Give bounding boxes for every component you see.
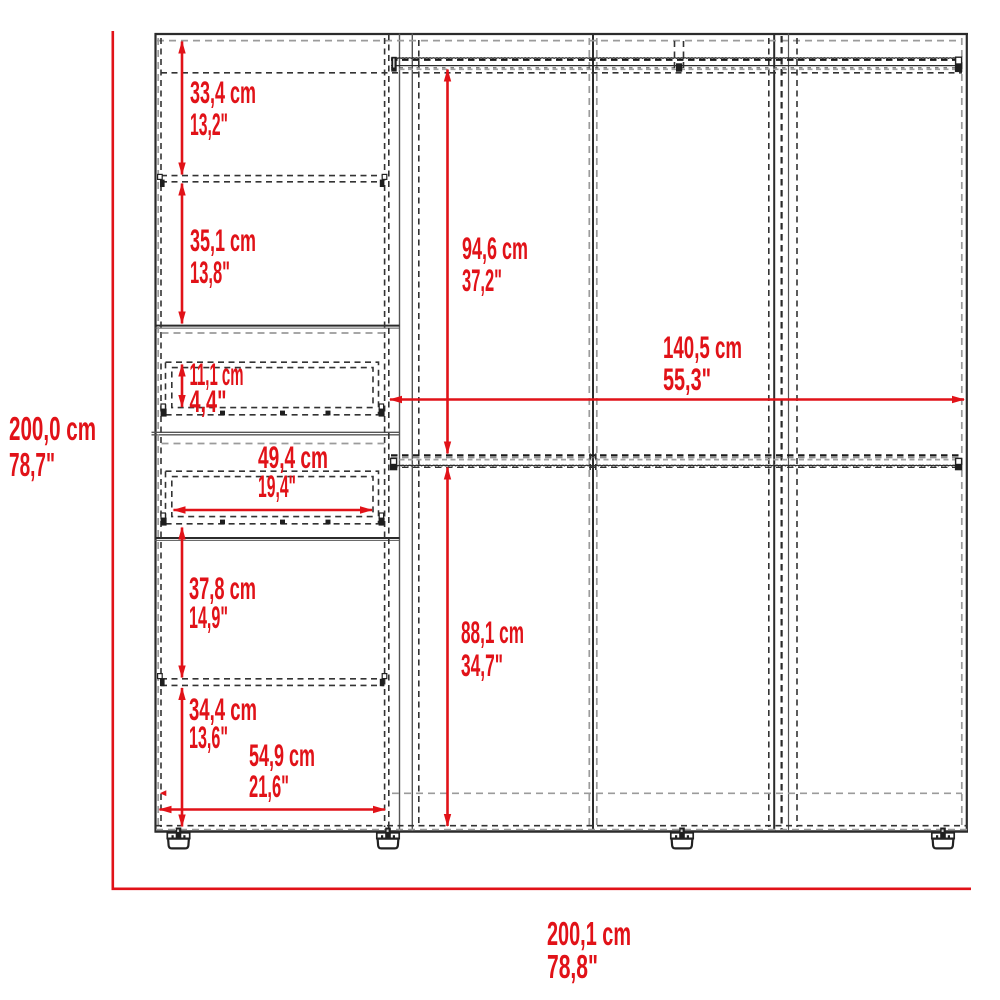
- svg-text:13,6": 13,6": [189, 719, 228, 755]
- svg-text:200,0 cm: 200,0 cm: [9, 411, 96, 448]
- svg-text:13,8": 13,8": [190, 254, 230, 290]
- svg-text:34,7": 34,7": [461, 647, 503, 683]
- svg-text:37,2": 37,2": [462, 262, 502, 298]
- svg-text:55,3": 55,3": [663, 361, 711, 397]
- svg-text:140,5 cm: 140,5 cm: [663, 329, 742, 365]
- svg-text:200,1 cm: 200,1 cm: [547, 916, 631, 953]
- svg-text:4,4": 4,4": [190, 383, 227, 419]
- svg-text:35,1 cm: 35,1 cm: [190, 222, 256, 258]
- svg-text:78,8": 78,8": [547, 949, 598, 986]
- svg-text:78,7": 78,7": [9, 447, 55, 484]
- svg-text:14,9": 14,9": [189, 599, 228, 635]
- svg-text:19,4": 19,4": [258, 468, 296, 504]
- svg-text:94,6 cm: 94,6 cm: [462, 230, 528, 266]
- svg-text:21,6": 21,6": [249, 768, 289, 804]
- svg-text:33,4 cm: 33,4 cm: [190, 74, 256, 110]
- svg-text:88,1 cm: 88,1 cm: [461, 614, 524, 650]
- svg-text:13,2": 13,2": [190, 106, 228, 142]
